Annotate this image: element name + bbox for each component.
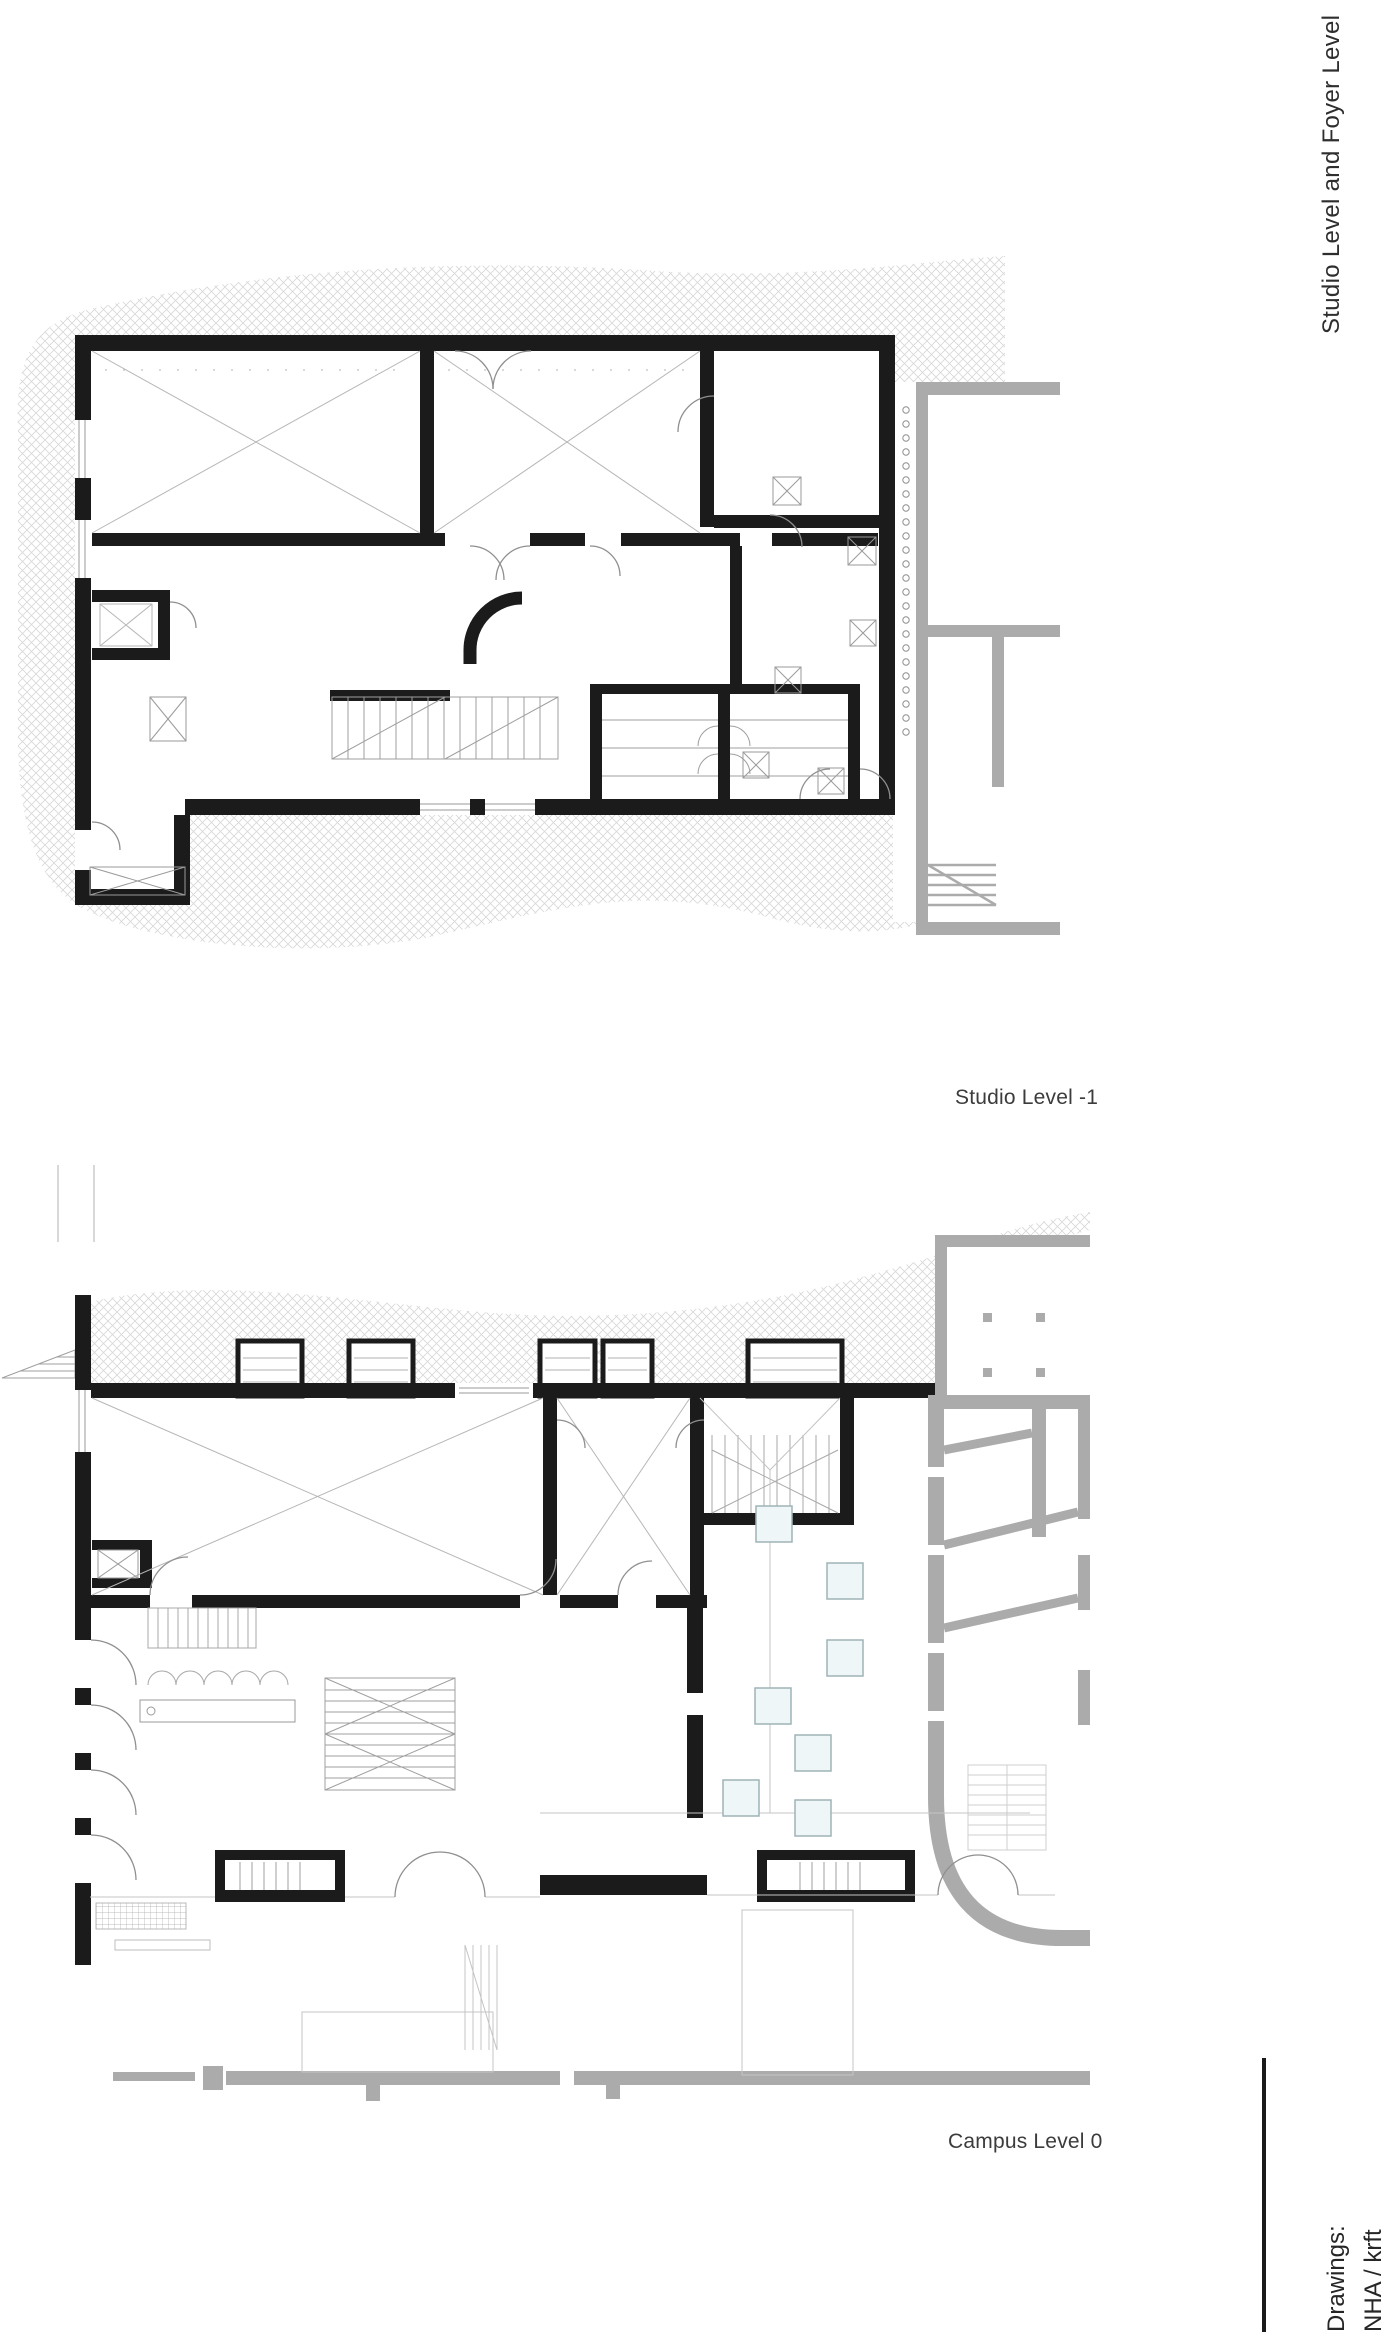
entrance-mat (96, 1903, 186, 1929)
sheet-side-title: Studio Level and Foyer Level (1318, 0, 1358, 334)
exterior-outlines (90, 1895, 1055, 2075)
bench (115, 1940, 210, 1950)
context-stair (968, 1765, 1046, 1850)
credits-value: NHA / krft (1355, 2138, 1392, 2332)
credits-block: Drawings: NHA / krft (1318, 2138, 1398, 2332)
caption-studio-level: Studio Level -1 (955, 1086, 1098, 1110)
plan-campus-level-0 (0, 1150, 1100, 2120)
ramp (2, 1350, 75, 1378)
credit-divider-line (1262, 2058, 1266, 2332)
credits-label: Drawings: (1318, 2138, 1355, 2332)
reception-desk (140, 1700, 295, 1722)
context-zone (935, 1235, 1090, 1395)
drawing-sheet: Studio Level -1 (0, 0, 1400, 2344)
context-curved-wall (936, 1796, 1062, 1938)
context-diagonal-walls (944, 1433, 1078, 1628)
plan-studio-level-minus-1 (0, 170, 1060, 980)
reference-lines (58, 1165, 94, 1242)
caption-campus-level: Campus Level 0 (948, 2130, 1103, 2154)
